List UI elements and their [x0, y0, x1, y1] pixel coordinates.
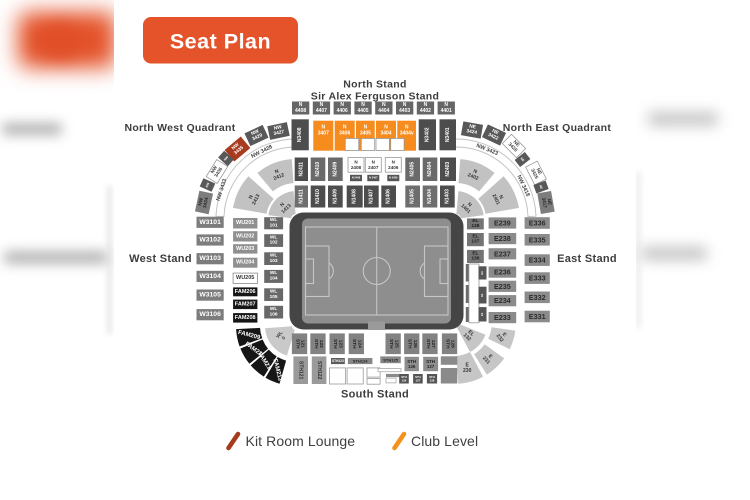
- svg-text:125: 125: [393, 340, 399, 348]
- svg-text:E1: E1: [480, 312, 484, 316]
- svg-text:137: 137: [471, 239, 479, 245]
- svg-text:WL: WL: [270, 306, 278, 312]
- svg-text:N 5407: N 5407: [369, 176, 378, 180]
- svg-text:2407: 2407: [368, 165, 379, 170]
- svg-text:W3101: W3101: [199, 219, 221, 226]
- svg-text:230: 230: [463, 368, 472, 374]
- svg-text:3406: 3406: [339, 131, 350, 137]
- svg-text:136: 136: [471, 256, 479, 262]
- svg-text:4402: 4402: [420, 108, 431, 114]
- svg-text:E1: E1: [480, 271, 484, 275]
- svg-text:2406: 2406: [388, 165, 399, 170]
- svg-text:STH124: STH124: [353, 359, 368, 364]
- svg-text:W3103: W3103: [199, 255, 221, 262]
- svg-text:W3104: W3104: [199, 273, 221, 280]
- svg-text:124: 124: [356, 340, 362, 348]
- svg-text:4401: 4401: [441, 108, 452, 114]
- svg-text:121: 121: [300, 340, 306, 348]
- svg-text:STH123: STH123: [332, 359, 344, 363]
- svg-text:N3402: N3402: [424, 127, 430, 142]
- svg-text:E333: E333: [529, 274, 546, 283]
- svg-text:E237: E237: [494, 249, 511, 258]
- svg-text:N2411: N2411: [298, 162, 304, 177]
- svg-text:127: 127: [427, 364, 435, 369]
- svg-text:N3401: N3401: [445, 127, 451, 142]
- svg-text:WU201: WU201: [236, 220, 254, 226]
- svg-text:N2410: N2410: [315, 162, 321, 177]
- svg-text:FAM207: FAM207: [235, 301, 256, 307]
- svg-text:138: 138: [471, 223, 479, 229]
- svg-text:N3408: N3408: [297, 127, 303, 142]
- svg-text:WU202: WU202: [236, 233, 254, 239]
- svg-text:Kit Room Lounge: Kit Room Lounge: [246, 433, 356, 449]
- svg-text:WL: WL: [270, 289, 278, 295]
- svg-text:N2403: N2403: [445, 162, 451, 177]
- svg-text:E1: E1: [480, 293, 484, 297]
- svg-text:Sir Alex Ferguson Stand: Sir Alex Ferguson Stand: [311, 91, 439, 103]
- svg-text:127: 127: [416, 378, 421, 382]
- svg-text:128: 128: [430, 378, 435, 382]
- svg-text:E238: E238: [494, 234, 511, 243]
- svg-text:E239: E239: [494, 219, 511, 228]
- svg-text:W3102: W3102: [199, 237, 221, 244]
- svg-text:N2405: N2405: [410, 162, 416, 177]
- svg-text:4404: 4404: [378, 108, 389, 114]
- svg-text:E233: E233: [494, 313, 511, 322]
- svg-text:STH: STH: [332, 339, 338, 349]
- svg-text:127: 127: [430, 340, 436, 348]
- svg-text:123: 123: [337, 340, 343, 348]
- svg-text:FAM208: FAM208: [235, 315, 256, 321]
- svg-text:STH121: STH121: [298, 361, 304, 380]
- svg-text:N1410: N1410: [315, 189, 321, 204]
- svg-text:STH: STH: [294, 339, 300, 349]
- svg-text:N1411: N1411: [298, 189, 304, 204]
- svg-text:105: 105: [270, 294, 278, 300]
- svg-text:WU203: WU203: [236, 246, 254, 252]
- svg-text:STH: STH: [444, 339, 450, 349]
- svg-text:W3106: W3106: [199, 311, 221, 318]
- svg-text:N1405: N1405: [410, 189, 416, 204]
- svg-text:3405: 3405: [360, 131, 371, 137]
- svg-text:EL: EL: [472, 218, 478, 224]
- svg-text:3404: 3404: [380, 131, 391, 137]
- svg-text:Seat Plan: Seat Plan: [170, 30, 271, 54]
- svg-text:STH125: STH125: [383, 357, 398, 362]
- svg-text:WL: WL: [270, 234, 278, 240]
- svg-text:EL: EL: [472, 250, 478, 256]
- svg-text:126: 126: [408, 364, 416, 369]
- svg-text:101: 101: [270, 222, 278, 228]
- svg-text:WU205: WU205: [236, 275, 254, 281]
- svg-text:4407: 4407: [316, 108, 327, 114]
- svg-text:N1408: N1408: [352, 189, 358, 204]
- svg-text:102: 102: [270, 240, 278, 246]
- svg-text:E236: E236: [494, 268, 511, 277]
- svg-text:N1406: N1406: [386, 189, 392, 204]
- svg-text:N2404: N2404: [427, 162, 433, 177]
- svg-text:N1403: N1403: [444, 189, 450, 204]
- svg-text:3404v: 3404v: [400, 131, 414, 137]
- svg-text:STH: STH: [407, 339, 413, 349]
- svg-text:North East Quadrant: North East Quadrant: [503, 122, 612, 134]
- svg-text:South Stand: South Stand: [341, 389, 409, 401]
- svg-text:W3105: W3105: [199, 292, 221, 299]
- svg-text:E334: E334: [529, 256, 546, 265]
- svg-text:E336: E336: [529, 219, 546, 228]
- svg-text:122: 122: [318, 340, 324, 348]
- svg-text:STH: STH: [425, 339, 431, 349]
- svg-text:E234: E234: [494, 296, 511, 305]
- svg-text:N 5406: N 5406: [389, 176, 398, 180]
- svg-text:N1407: N1407: [368, 189, 374, 204]
- svg-text:4403: 4403: [399, 108, 410, 114]
- svg-text:WL: WL: [270, 217, 278, 223]
- svg-text:3407: 3407: [318, 131, 329, 137]
- svg-text:126: 126: [412, 340, 418, 348]
- svg-text:WL: WL: [270, 253, 278, 259]
- svg-text:4406: 4406: [337, 108, 348, 114]
- svg-text:N1404: N1404: [427, 189, 433, 204]
- svg-text:STH122: STH122: [316, 361, 322, 380]
- svg-text:West Stand: West Stand: [129, 253, 192, 265]
- svg-text:North Stand: North Stand: [343, 79, 406, 91]
- svg-text:E335: E335: [529, 235, 546, 244]
- svg-text:East Stand: East Stand: [557, 253, 617, 265]
- svg-text:2408: 2408: [351, 165, 362, 170]
- svg-text:North West Quadrant: North West Quadrant: [124, 122, 235, 134]
- svg-text:106: 106: [270, 311, 278, 317]
- svg-text:WU204: WU204: [236, 260, 255, 266]
- svg-text:WL: WL: [270, 270, 278, 276]
- svg-text:103: 103: [270, 258, 278, 264]
- svg-text:E332: E332: [529, 293, 546, 302]
- svg-text:Club Level: Club Level: [411, 433, 478, 449]
- svg-text:E331: E331: [529, 312, 546, 321]
- svg-text:E235: E235: [494, 282, 511, 291]
- svg-text:STH: STH: [351, 339, 357, 349]
- svg-text:128: 128: [450, 340, 456, 348]
- svg-text:104: 104: [270, 276, 278, 282]
- svg-text:STH: STH: [388, 339, 394, 349]
- svg-text:N 5408: N 5408: [352, 176, 361, 180]
- svg-text:STH: STH: [313, 339, 319, 349]
- svg-text:N2409: N2409: [332, 162, 338, 177]
- svg-text:4405: 4405: [357, 108, 368, 114]
- svg-text:126: 126: [402, 378, 407, 382]
- svg-text:N1409: N1409: [332, 189, 338, 204]
- svg-text:FAM206: FAM206: [235, 289, 256, 295]
- svg-text:4408: 4408: [295, 108, 306, 114]
- svg-text:EL: EL: [472, 234, 478, 240]
